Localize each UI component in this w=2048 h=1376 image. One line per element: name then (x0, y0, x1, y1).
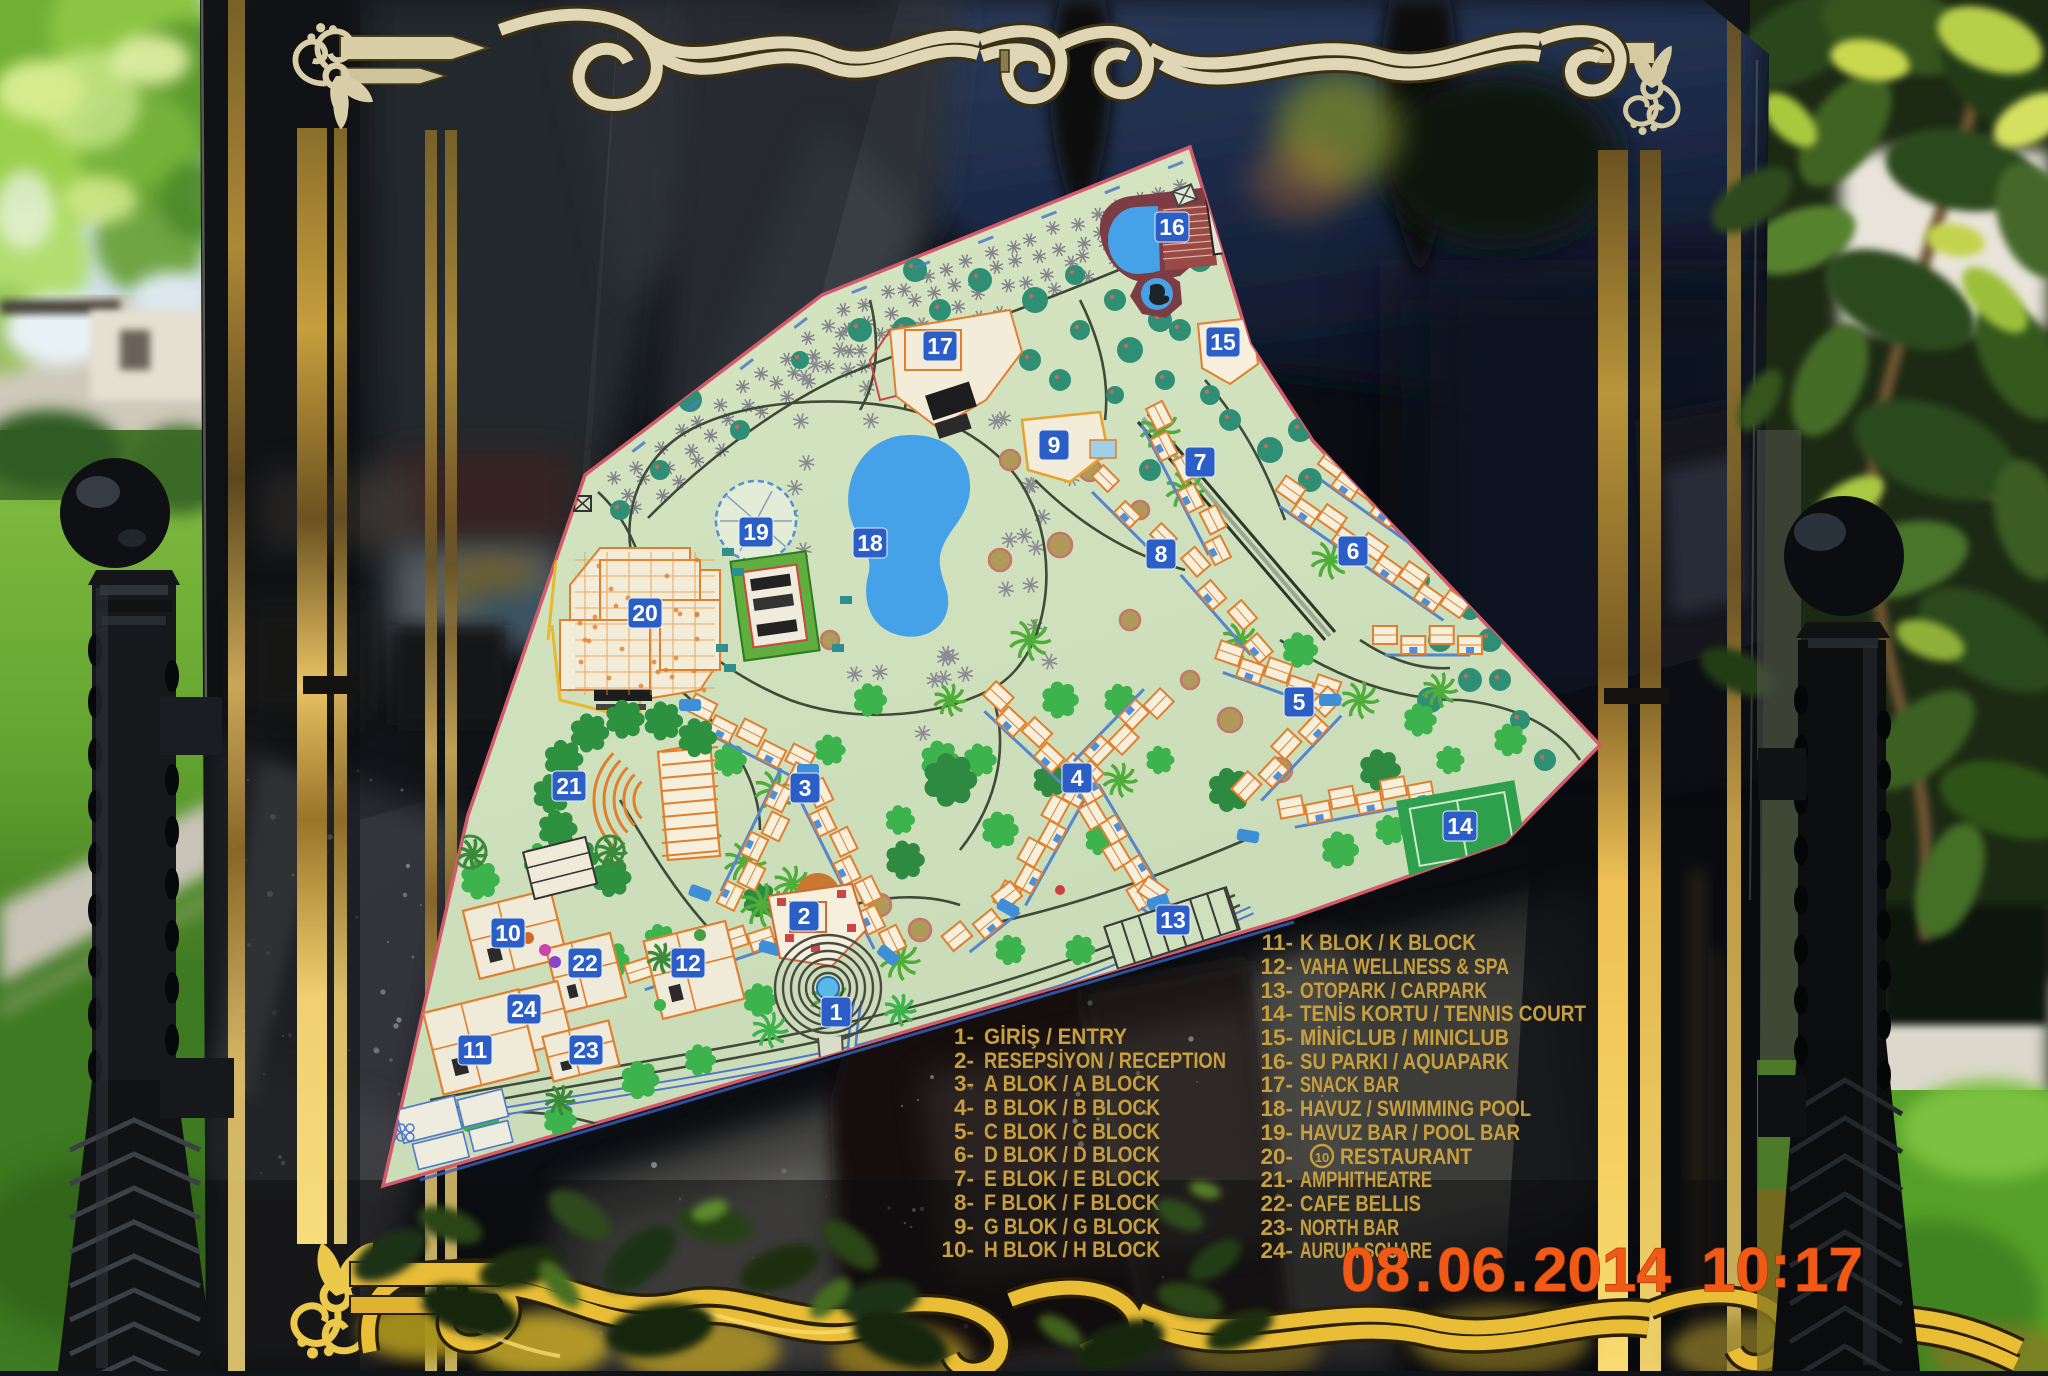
svg-text:3-: 3- (954, 1071, 974, 1096)
svg-text:24: 24 (511, 996, 537, 1022)
svg-text:TENİS KORTU / TENNIS COURT: TENİS KORTU / TENNIS COURT (1300, 1001, 1586, 1026)
svg-text:22-: 22- (1260, 1191, 1293, 1216)
svg-text:21: 21 (556, 773, 582, 799)
svg-text:F BLOK / F BLOCK: F BLOK / F BLOCK (984, 1190, 1161, 1215)
svg-text:AMPHITHEATRE: AMPHITHEATRE (1300, 1167, 1432, 1192)
svg-text:CAFE BELLIS: CAFE BELLIS (1300, 1191, 1421, 1216)
svg-text:5-: 5- (954, 1119, 974, 1144)
svg-text:22: 22 (572, 950, 598, 976)
svg-text:19: 19 (743, 519, 769, 545)
svg-text:4-: 4- (954, 1095, 974, 1120)
svg-text:E BLOK / E BLOCK: E BLOK / E BLOCK (984, 1166, 1161, 1191)
svg-text:15-: 15- (1260, 1025, 1293, 1050)
svg-text:7-: 7- (954, 1166, 974, 1191)
svg-text:21-: 21- (1260, 1167, 1293, 1192)
svg-text:12-: 12- (1260, 954, 1293, 979)
svg-text:A BLOK / A BLOCK: A BLOK / A BLOCK (984, 1071, 1161, 1096)
svg-text:20-: 20- (1260, 1144, 1293, 1169)
svg-text:17: 17 (927, 333, 953, 359)
svg-text:16: 16 (1159, 214, 1185, 240)
svg-text:20: 20 (632, 600, 658, 626)
svg-text:24-: 24- (1260, 1238, 1293, 1263)
svg-text:17-: 17- (1260, 1072, 1293, 1097)
svg-text:G BLOK / G BLOCK: G BLOK / G BLOCK (984, 1214, 1161, 1239)
svg-text:6: 6 (1347, 538, 1360, 564)
svg-text:K BLOK / K BLOCK: K BLOK / K BLOCK (1300, 930, 1477, 955)
svg-text:8: 8 (1155, 541, 1168, 567)
svg-text::: : (1770, 1232, 1791, 1301)
svg-text:.: . (1415, 1236, 1432, 1305)
svg-text:8-: 8- (954, 1190, 974, 1215)
svg-text:GİRİŞ / ENTRY: GİRİŞ / ENTRY (984, 1024, 1127, 1049)
svg-text:D BLOK / D BLOCK: D BLOK / D BLOCK (984, 1142, 1161, 1167)
svg-text:9-: 9- (954, 1214, 974, 1239)
svg-text:H BLOK / H BLOCK: H BLOK / H BLOCK (984, 1237, 1161, 1262)
svg-text:15: 15 (1210, 329, 1236, 355)
svg-text:06: 06 (1437, 1236, 1506, 1305)
svg-text:HAVUZ BAR / POOL BAR: HAVUZ BAR / POOL BAR (1300, 1120, 1520, 1145)
svg-text:12: 12 (675, 950, 701, 976)
svg-text:C BLOK / C BLOCK: C BLOK / C BLOCK (984, 1119, 1161, 1144)
svg-text:18: 18 (857, 530, 883, 556)
svg-text:13-: 13- (1260, 978, 1293, 1003)
svg-text:4: 4 (1071, 765, 1084, 791)
svg-text:16-: 16- (1260, 1049, 1293, 1074)
svg-text:14-: 14- (1260, 1001, 1293, 1026)
svg-text:2014: 2014 (1533, 1236, 1671, 1305)
svg-text:18-: 18- (1260, 1096, 1293, 1121)
svg-text:B BLOK / B BLOCK: B BLOK / B BLOCK (984, 1095, 1161, 1120)
svg-text:14: 14 (1447, 813, 1473, 839)
svg-text:1-: 1- (954, 1024, 974, 1049)
svg-text:10: 10 (495, 920, 521, 946)
svg-text:1: 1 (830, 999, 843, 1025)
svg-text:23: 23 (573, 1037, 599, 1063)
svg-text:OTOPARK / CARPARK: OTOPARK / CARPARK (1300, 978, 1488, 1003)
svg-text:2: 2 (798, 903, 811, 929)
svg-text:6-: 6- (954, 1142, 974, 1167)
svg-text:2-: 2- (954, 1048, 974, 1073)
svg-text:10: 10 (1701, 1236, 1770, 1305)
svg-text:10-: 10- (941, 1237, 974, 1262)
svg-text:13: 13 (1160, 907, 1186, 933)
svg-text:VAHA WELLNESS & SPA: VAHA WELLNESS & SPA (1300, 954, 1509, 979)
svg-text:10: 10 (1315, 1150, 1329, 1165)
svg-text:SU PARKI / AQUAPARK: SU PARKI / AQUAPARK (1300, 1049, 1510, 1074)
svg-text:.: . (1511, 1236, 1528, 1305)
svg-text:5: 5 (1293, 689, 1306, 715)
svg-text:MİNİCLUB / MINICLUB: MİNİCLUB / MINICLUB (1300, 1025, 1509, 1050)
svg-text:19-: 19- (1260, 1120, 1293, 1145)
svg-text:23-: 23- (1260, 1215, 1293, 1240)
svg-text:17: 17 (1794, 1236, 1863, 1305)
svg-text:11-: 11- (1262, 930, 1293, 955)
svg-text:RESEPSİYON / RECEPTION: RESEPSİYON / RECEPTION (984, 1048, 1226, 1073)
svg-text:HAVUZ / SWIMMING POOL: HAVUZ / SWIMMING POOL (1300, 1096, 1531, 1121)
svg-text:11: 11 (463, 1037, 488, 1063)
svg-text:08: 08 (1341, 1236, 1410, 1305)
svg-text:9: 9 (1048, 432, 1061, 458)
svg-text:7: 7 (1194, 449, 1207, 475)
svg-text:SNACK BAR: SNACK BAR (1300, 1072, 1399, 1097)
svg-text:RESTAURANT: RESTAURANT (1340, 1144, 1472, 1169)
svg-text:3: 3 (799, 775, 812, 801)
